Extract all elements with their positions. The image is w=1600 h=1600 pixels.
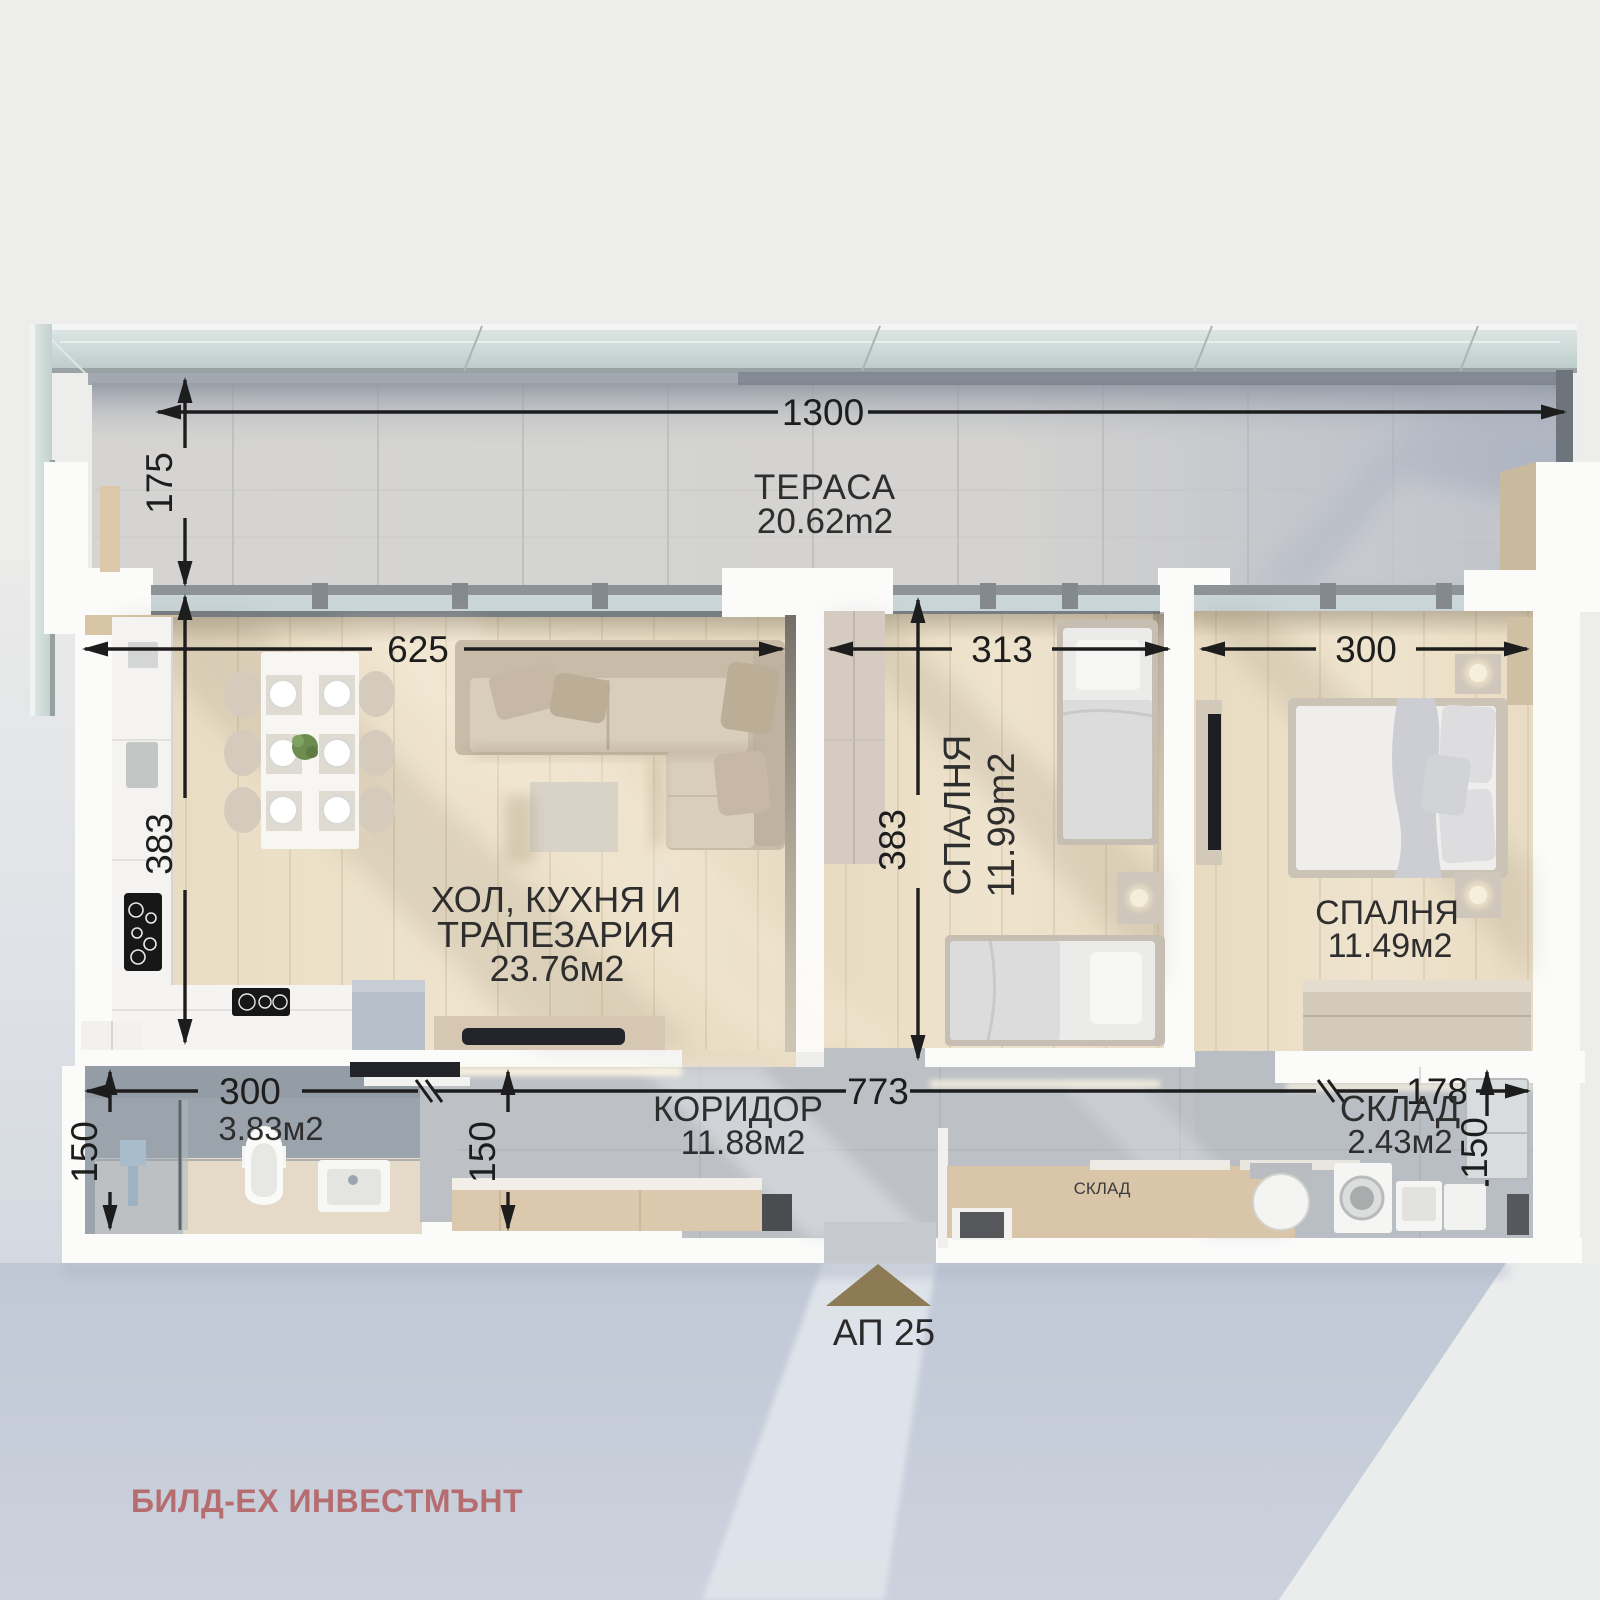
svg-text:1300: 1300 xyxy=(782,392,864,433)
svg-text:150: 150 xyxy=(1454,1117,1495,1179)
svg-text:11.88м2: 11.88м2 xyxy=(681,1124,806,1162)
svg-text:20.62m2: 20.62m2 xyxy=(757,502,893,541)
svg-text:СКЛАД: СКЛАД xyxy=(1074,1179,1131,1198)
svg-text:175: 175 xyxy=(139,452,180,514)
svg-text:383: 383 xyxy=(872,809,913,871)
svg-text:23.76м2: 23.76м2 xyxy=(490,948,625,989)
svg-text:773: 773 xyxy=(847,1071,909,1112)
svg-text:300: 300 xyxy=(219,1071,281,1112)
svg-text:СПАЛНЯ: СПАЛНЯ xyxy=(937,735,979,896)
svg-text:2.43м2: 2.43м2 xyxy=(1347,1123,1452,1160)
svg-text:11.99m2: 11.99m2 xyxy=(981,752,1023,897)
svg-text:383: 383 xyxy=(139,813,180,875)
svg-text:БИЛД-EX ИНВЕСТМЪНТ: БИЛД-EX ИНВЕСТМЪНТ xyxy=(131,1483,523,1519)
svg-text:300: 300 xyxy=(1335,629,1397,670)
svg-text:3.83м2: 3.83м2 xyxy=(218,1110,323,1147)
svg-text:625: 625 xyxy=(387,629,449,670)
svg-text:150: 150 xyxy=(462,1121,503,1183)
svg-text:11.49м2: 11.49м2 xyxy=(1328,927,1453,965)
svg-text:АП 25: АП 25 xyxy=(833,1312,935,1353)
svg-text:150: 150 xyxy=(64,1121,105,1183)
svg-text:313: 313 xyxy=(971,629,1033,670)
